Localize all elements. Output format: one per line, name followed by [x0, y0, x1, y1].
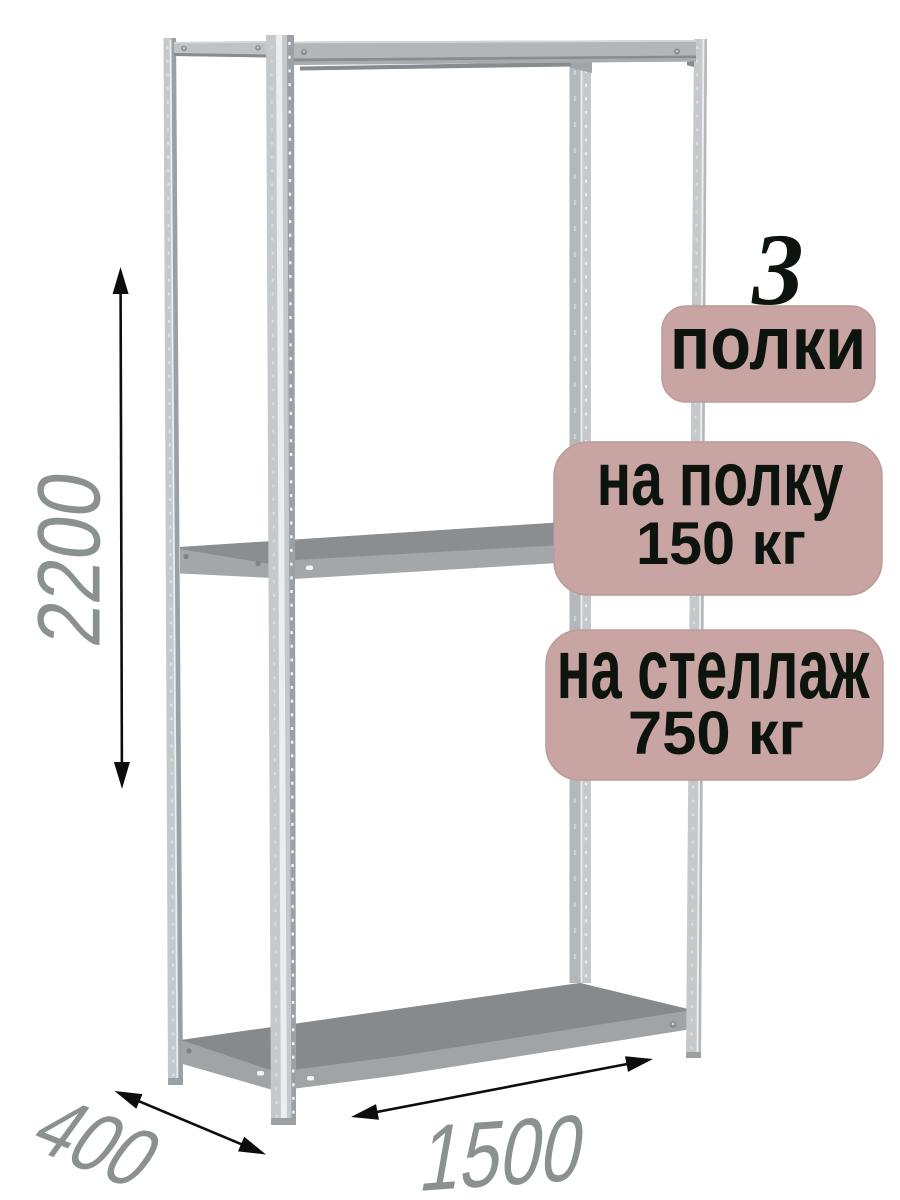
svg-text:150 кг: 150 кг [636, 510, 806, 577]
svg-text:2200: 2200 [19, 465, 119, 651]
svg-text:1500: 1500 [413, 1095, 593, 1200]
svg-text:полки: полки [670, 302, 866, 385]
svg-text:750 кг: 750 кг [628, 699, 804, 767]
